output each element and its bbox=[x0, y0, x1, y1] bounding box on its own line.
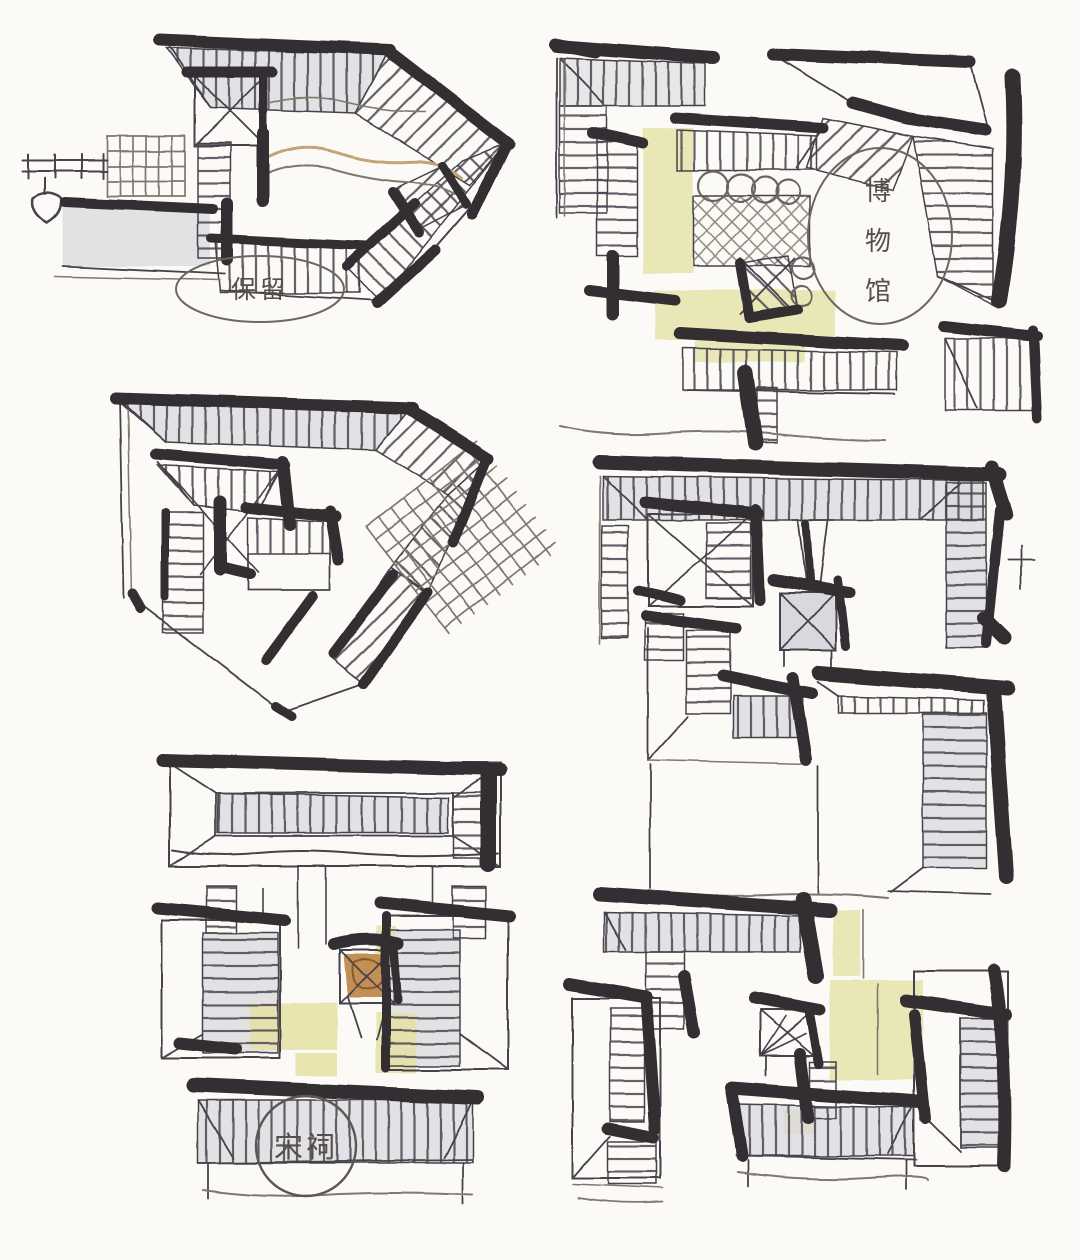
roof-plan-drawing bbox=[116, 398, 560, 716]
museum-char-2: 物 bbox=[865, 227, 891, 257]
annotation-hall-label: 宋祠 bbox=[274, 1130, 338, 1164]
sketch-plan-courtyard-bottom bbox=[548, 866, 1048, 1218]
sketch-plan-courtyard-mid bbox=[588, 448, 1046, 910]
museum-char-1: 博 bbox=[865, 177, 891, 207]
roof-plan-drawing bbox=[600, 462, 1034, 898]
sketch-sheet: 保留 宋祠 博 物 馆 bbox=[0, 0, 1080, 1260]
sketch-plan-ancestral-hall: 宋祠 bbox=[148, 738, 526, 1216]
annotation-preserve-label: 保留 bbox=[231, 275, 289, 304]
roof-plan-drawing bbox=[570, 894, 1008, 1203]
roof-plan-drawing bbox=[555, 44, 1037, 443]
sketch-plan-pentagon-compound bbox=[108, 362, 528, 730]
museum-char-3: 馆 bbox=[865, 277, 891, 307]
sketch-plan-stream-compound: 保留 bbox=[15, 8, 515, 328]
sketch-plan-museum: 博 物 馆 bbox=[545, 18, 1047, 448]
roof-plan-drawing bbox=[23, 40, 509, 303]
